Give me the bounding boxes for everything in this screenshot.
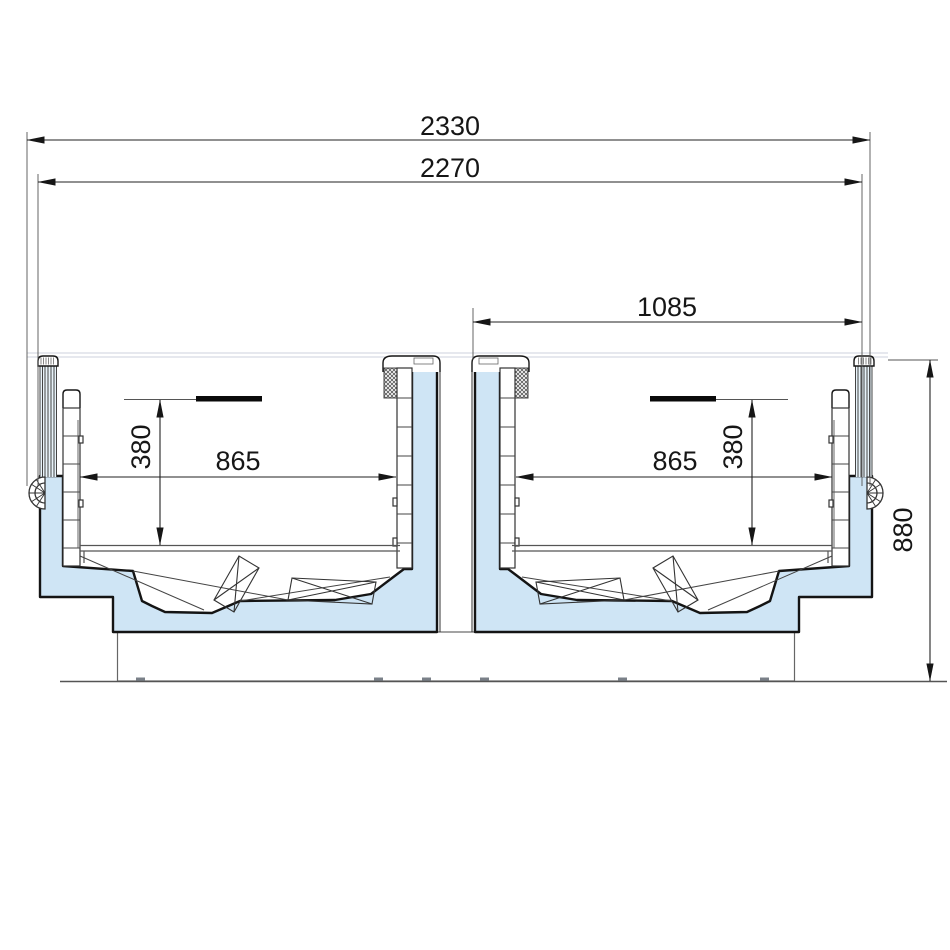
freezer-cross-section-drawing: 2330 2270 1085 865 380 865 380 8: [0, 0, 950, 950]
left-case-unit: [29, 356, 440, 632]
dimension-half-unit-width: 1085: [473, 292, 862, 360]
dimension-left-well-depth: 380: [124, 400, 196, 546]
dim-label-body-width: 2270: [420, 153, 480, 183]
plinth-base: [118, 632, 795, 681]
dim-label-left-well-depth: 380: [126, 424, 156, 469]
dimension-right-well-depth: 380: [716, 400, 788, 546]
dim-label-left-well-width: 865: [215, 446, 260, 476]
dimension-right-well-width: 865: [516, 420, 834, 548]
dim-label-half-unit-width: 1085: [637, 292, 697, 322]
right-case-unit: [472, 356, 883, 632]
dim-label-overall-width: 2330: [420, 111, 480, 141]
top-level-lines: [27, 353, 888, 357]
technical-drawing-page: 2330 2270 1085 865 380 865 380 8: [0, 0, 950, 950]
dim-label-overall-height: 880: [888, 507, 918, 552]
dim-label-right-well-width: 865: [652, 446, 697, 476]
dimension-overall-height: 880: [888, 360, 938, 681]
dim-label-right-well-depth: 380: [718, 424, 748, 469]
